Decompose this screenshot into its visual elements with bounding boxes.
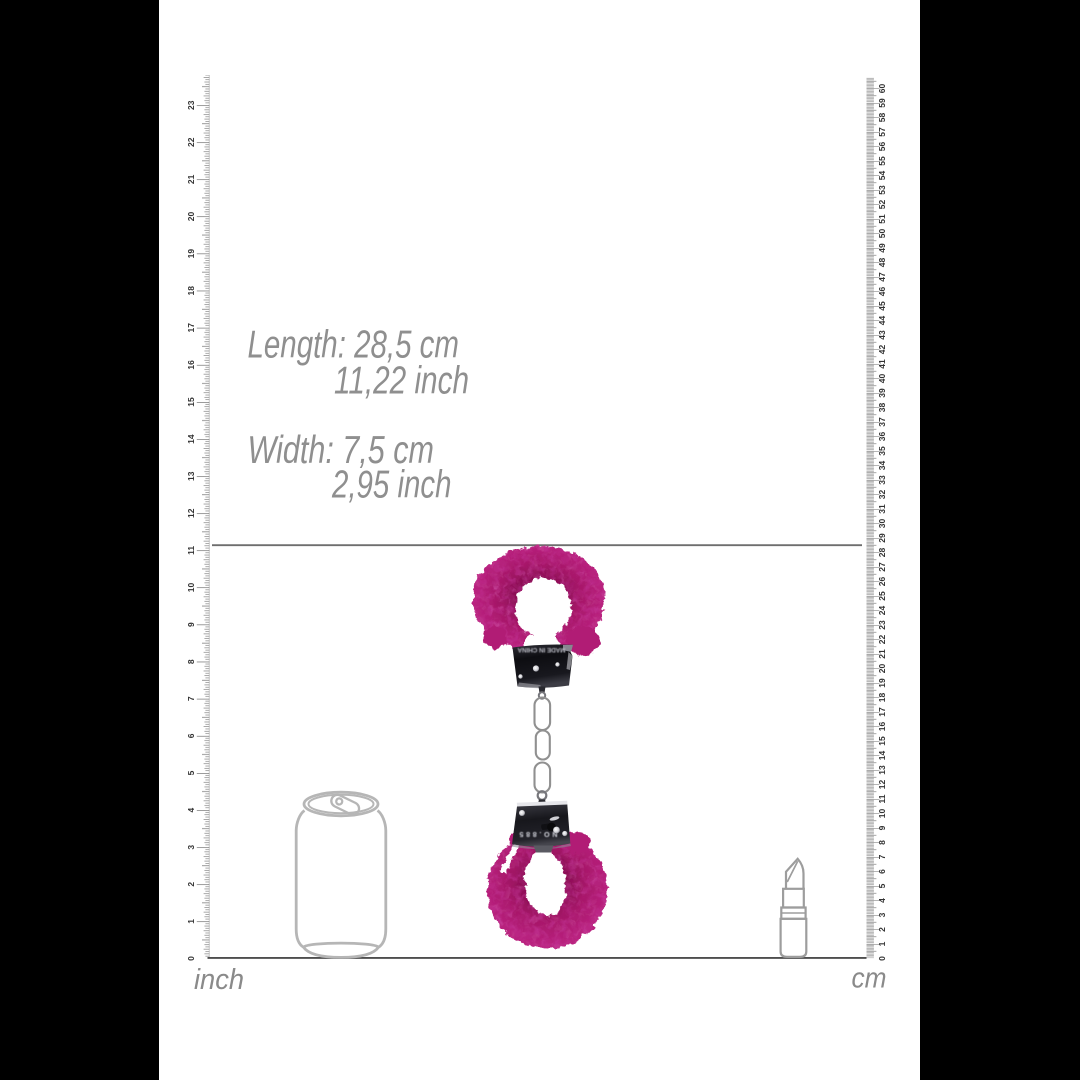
svg-text:20: 20 — [877, 664, 887, 674]
svg-text:15: 15 — [877, 736, 887, 746]
svg-text:31: 31 — [877, 504, 887, 514]
svg-text:59: 59 — [877, 98, 887, 108]
svg-text:28: 28 — [877, 548, 887, 558]
svg-text:55: 55 — [877, 156, 887, 166]
svg-text:3: 3 — [877, 912, 887, 917]
svg-text:10: 10 — [877, 809, 887, 819]
svg-text:25: 25 — [877, 591, 887, 601]
svg-text:2: 2 — [877, 927, 887, 932]
svg-text:11: 11 — [186, 546, 196, 555]
svg-text:0: 0 — [877, 956, 887, 961]
svg-text:52: 52 — [877, 200, 887, 210]
svg-text:1: 1 — [186, 919, 196, 924]
svg-text:44: 44 — [877, 316, 887, 326]
svg-text:51: 51 — [877, 214, 887, 224]
svg-text:7: 7 — [877, 854, 887, 859]
svg-text:14: 14 — [877, 751, 887, 761]
svg-text:5: 5 — [186, 770, 196, 775]
svg-text:37: 37 — [877, 417, 887, 427]
svg-text:38: 38 — [877, 403, 887, 413]
svg-text:15: 15 — [186, 397, 196, 407]
svg-text:5: 5 — [877, 883, 887, 888]
svg-text:7: 7 — [186, 696, 196, 701]
svg-text:47: 47 — [877, 272, 887, 282]
svg-text:41: 41 — [877, 359, 887, 369]
svg-text:24: 24 — [877, 606, 887, 616]
svg-text:21: 21 — [877, 649, 887, 659]
svg-text:12: 12 — [186, 508, 196, 518]
svg-text:45: 45 — [877, 301, 887, 311]
svg-text:22: 22 — [186, 137, 196, 147]
svg-text:18: 18 — [186, 286, 196, 296]
svg-text:3: 3 — [186, 845, 196, 850]
svg-text:40: 40 — [877, 374, 887, 384]
svg-text:35: 35 — [877, 446, 887, 456]
svg-text:34: 34 — [877, 461, 887, 471]
svg-text:4: 4 — [186, 807, 196, 812]
svg-text:17: 17 — [877, 707, 887, 717]
svg-text:42: 42 — [877, 345, 887, 355]
svg-text:27: 27 — [877, 562, 887, 572]
svg-text:39: 39 — [877, 388, 887, 398]
svg-text:56: 56 — [877, 142, 887, 152]
svg-text:29: 29 — [877, 533, 887, 543]
svg-text:13: 13 — [186, 471, 196, 481]
svg-text:20: 20 — [186, 212, 196, 222]
svg-text:22: 22 — [877, 635, 887, 645]
svg-text:13: 13 — [877, 765, 887, 775]
svg-text:23: 23 — [186, 100, 196, 110]
svg-text:58: 58 — [877, 113, 887, 123]
svg-text:11,22 inch: 11,22 inch — [334, 359, 469, 402]
svg-text:32: 32 — [877, 490, 887, 500]
svg-text:6: 6 — [877, 869, 887, 874]
svg-text:14: 14 — [186, 434, 196, 444]
svg-text:8: 8 — [877, 840, 887, 845]
svg-text:19: 19 — [877, 678, 887, 688]
svg-text:9: 9 — [877, 825, 887, 830]
svg-text:0: 0 — [186, 956, 196, 961]
svg-text:cm: cm — [852, 963, 887, 995]
svg-text:9: 9 — [186, 622, 196, 627]
svg-text:18: 18 — [877, 693, 887, 703]
svg-text:33: 33 — [877, 475, 887, 485]
svg-text:49: 49 — [877, 243, 887, 253]
svg-text:MADE IN CHINA: MADE IN CHINA — [517, 646, 565, 653]
svg-text:16: 16 — [186, 360, 196, 370]
svg-text:43: 43 — [877, 330, 887, 340]
svg-text:4: 4 — [877, 898, 887, 903]
svg-text:inch: inch — [194, 964, 244, 996]
svg-text:54: 54 — [877, 171, 887, 181]
svg-text:17: 17 — [186, 323, 196, 333]
svg-text:21: 21 — [186, 174, 196, 184]
svg-text:16: 16 — [877, 722, 887, 732]
svg-text:30: 30 — [877, 519, 887, 529]
svg-text:53: 53 — [877, 185, 887, 195]
svg-text:36: 36 — [877, 432, 887, 442]
svg-text:11: 11 — [877, 794, 887, 803]
svg-text:23: 23 — [877, 620, 887, 630]
svg-text:8: 8 — [186, 659, 196, 664]
svg-text:2,95 inch: 2,95 inch — [331, 463, 451, 506]
svg-text:57: 57 — [877, 127, 887, 137]
svg-text:6: 6 — [186, 733, 196, 738]
svg-text:50: 50 — [877, 229, 887, 239]
svg-text:1: 1 — [877, 941, 887, 946]
svg-text:26: 26 — [877, 577, 887, 587]
svg-text:46: 46 — [877, 287, 887, 297]
svg-text:2: 2 — [186, 882, 196, 887]
svg-text:60: 60 — [877, 84, 887, 94]
svg-text:19: 19 — [186, 249, 196, 259]
svg-text:12: 12 — [877, 780, 887, 790]
svg-text:10: 10 — [186, 583, 196, 593]
svg-text:48: 48 — [877, 258, 887, 268]
